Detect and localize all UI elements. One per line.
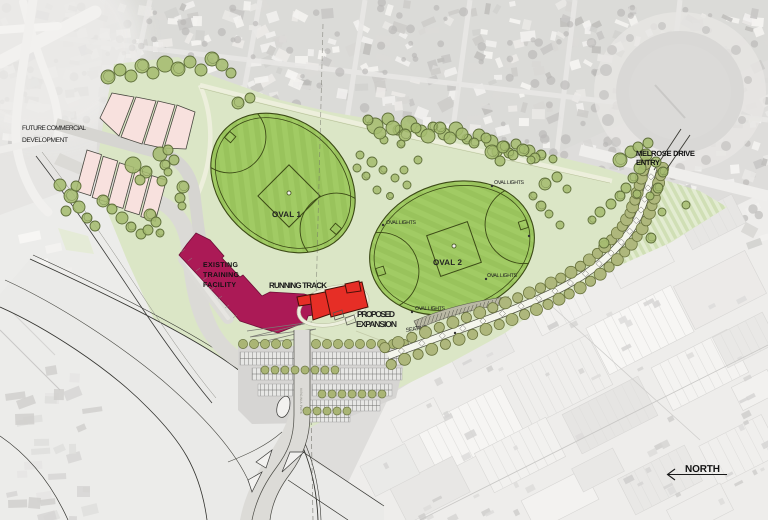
svg-text:VIRGINIA PARK: VIRGINIA PARK bbox=[299, 388, 303, 415]
svg-text:NORTH: NORTH bbox=[685, 464, 720, 475]
svg-text:ENTRY: ENTRY bbox=[636, 158, 660, 167]
svg-text:FACILITY: FACILITY bbox=[203, 282, 236, 289]
svg-text:OVAL LIGHTS: OVAL LIGHTS bbox=[487, 273, 517, 279]
svg-text:TRAINING: TRAINING bbox=[203, 272, 240, 279]
svg-text:OVAL 2: OVAL 2 bbox=[433, 258, 463, 267]
svg-text:RUNNING TRACK: RUNNING TRACK bbox=[269, 281, 327, 290]
svg-text:OVAL LIGHTS: OVAL LIGHTS bbox=[415, 306, 445, 312]
svg-text:FUTURE COMMERCIAL: FUTURE COMMERCIAL bbox=[22, 125, 86, 132]
svg-text:EXPANSION: EXPANSION bbox=[356, 319, 397, 329]
svg-text:DEVELOPMENT: DEVELOPMENT bbox=[22, 137, 68, 144]
svg-text:OVAL LIGHTS: OVAL LIGHTS bbox=[386, 220, 416, 226]
svg-text:OVAL 1: OVAL 1 bbox=[272, 210, 302, 219]
svg-text:OVAL LIGHTS: OVAL LIGHTS bbox=[494, 180, 524, 186]
svg-text:PROPOSED: PROPOSED bbox=[357, 309, 395, 319]
svg-text:MELROSE DRIVE: MELROSE DRIVE bbox=[636, 149, 695, 158]
svg-text:EXISTING: EXISTING bbox=[203, 262, 239, 269]
